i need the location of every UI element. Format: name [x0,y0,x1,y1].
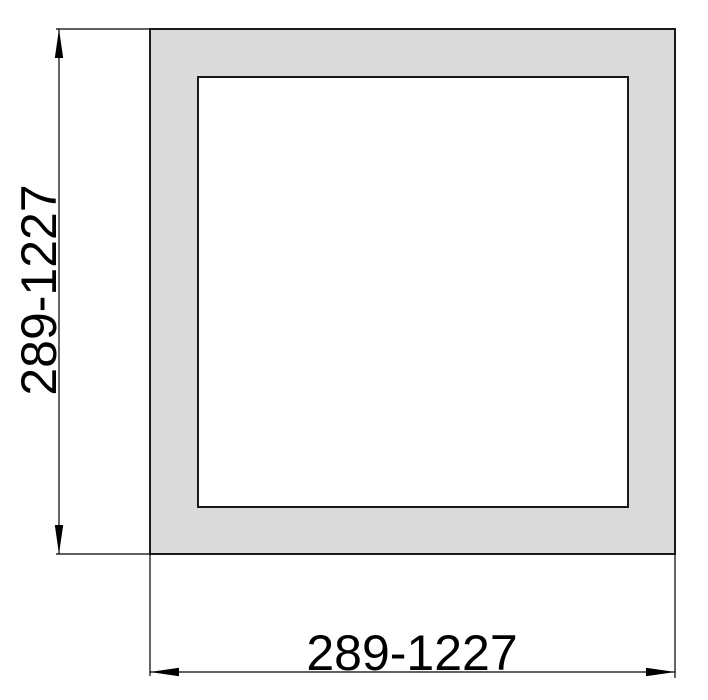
height-dimension: 289-1227 [11,29,150,554]
arrow-up-icon [55,29,63,58]
arrow-left-icon [150,668,179,676]
arrow-right-icon [646,668,675,676]
drawing-canvas: 289-1227 289-1227 [0,0,708,700]
arrow-down-icon [55,525,63,554]
width-dimension: 289-1227 [150,554,675,681]
tube-inner-bore [198,77,628,507]
tube-section [150,29,675,554]
height-dimension-label: 289-1227 [11,184,67,395]
width-dimension-label: 289-1227 [306,625,517,681]
drawing-page: 289-1227 289-1227 [0,0,708,700]
